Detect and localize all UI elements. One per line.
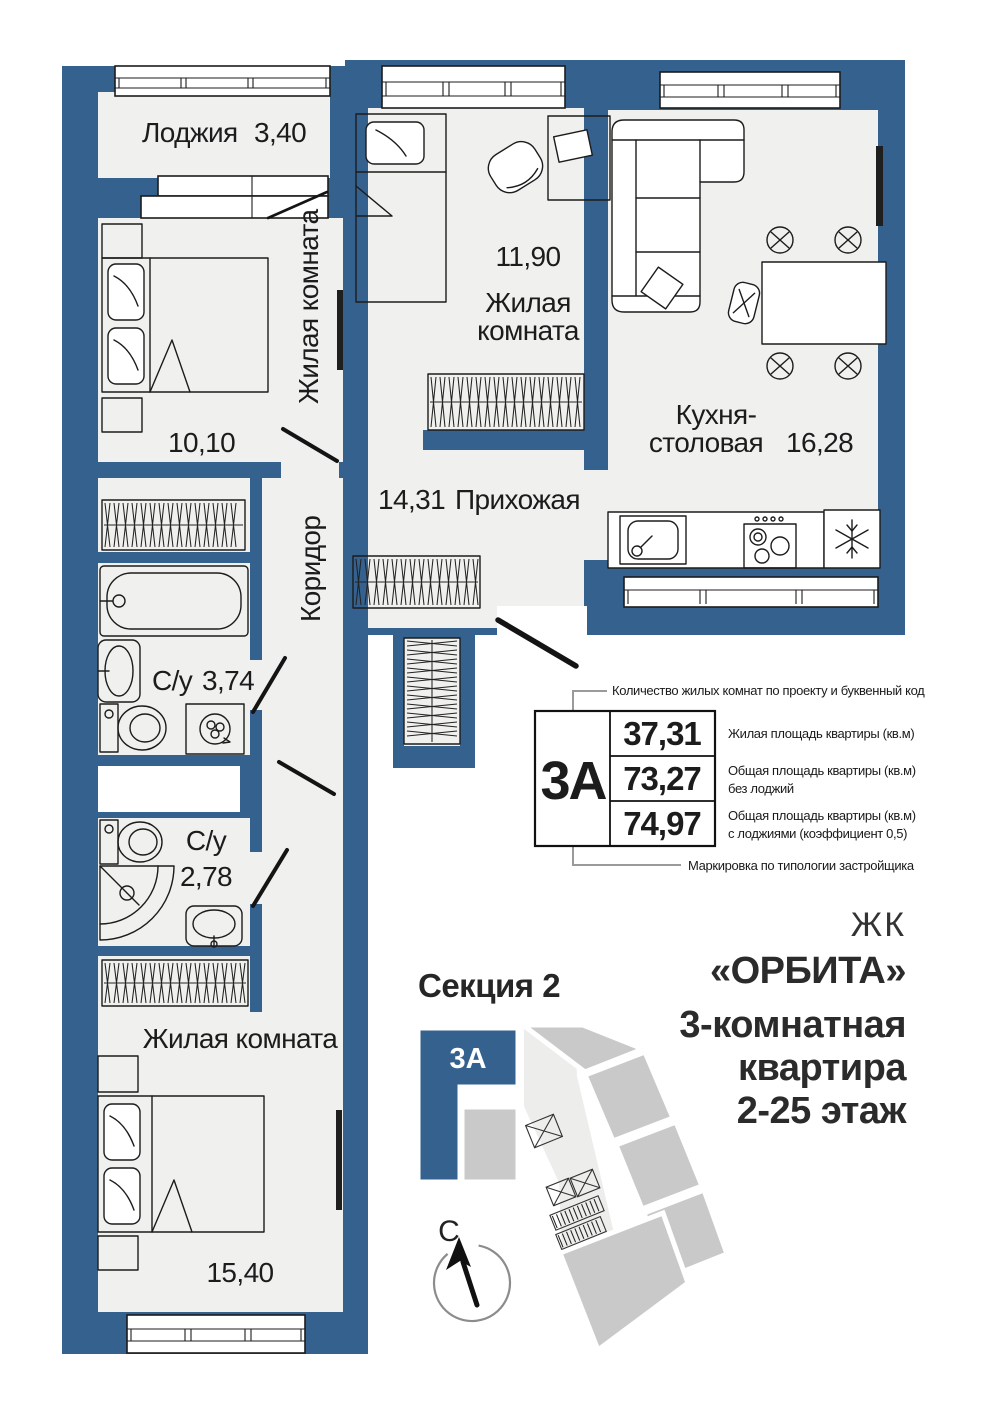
spec-table: 3А 37,31 73,27 74,97 Количество жилых ко…	[535, 683, 925, 873]
room-label-hallway: Прихожая	[455, 484, 580, 515]
floor-wardrobe-zone1	[98, 478, 250, 552]
spec-bottom-note: Маркировка по типологии застройщика	[688, 858, 915, 873]
floor-bath-main	[98, 563, 250, 755]
spec-note-2a: Общая площадь квартиры (кв.м)	[728, 763, 916, 778]
window-kitchen-top	[660, 72, 840, 108]
fridge	[824, 510, 880, 568]
map-block	[462, 1107, 518, 1182]
room-area-bath-main: 3,74	[202, 665, 254, 696]
room-area-bedroom-top: 11,90	[496, 241, 561, 272]
apartment-floors: 2-25 этаж	[737, 1090, 908, 1132]
room-label-bedroom-top-2: комната	[477, 315, 580, 346]
apartment-type-line2: квартира	[738, 1047, 907, 1089]
dining-table	[762, 262, 886, 344]
window-kitchen-bottom	[624, 577, 878, 607]
window-bedroom-bottom	[127, 1315, 305, 1353]
apartment-type-line1: 3-комнатная	[679, 1004, 906, 1046]
window-loggia	[115, 66, 330, 96]
room-label-bath-main: С/у	[152, 665, 193, 696]
spec-note-1: Жилая площадь квартиры (кв.м)	[728, 726, 914, 741]
compass-north-label: С	[438, 1215, 460, 1248]
project-prefix: ЖК	[851, 906, 906, 944]
tv-bedroom-left	[337, 290, 343, 370]
window-bedroom-top	[382, 66, 565, 108]
spec-value-living-area: 37,31	[623, 715, 701, 752]
compass: С	[434, 1215, 510, 1321]
floor-kitchen-passage	[584, 470, 608, 560]
room-area-hallway: 14,31	[378, 484, 445, 515]
unit-code: 3А	[540, 751, 606, 811]
spec-note-3a: Общая площадь квартиры (кв.м)	[728, 808, 916, 823]
room-label-bedroom-top-1: Жилая	[485, 287, 571, 318]
room-label-bath-guest: С/у	[186, 825, 227, 856]
spec-value-total-area: 73,27	[623, 760, 701, 797]
room-area-bedroom-bottom: 15,40	[206, 1257, 273, 1288]
kitchen-counter	[608, 510, 880, 568]
room-label-kitchen-2: столовая	[649, 427, 763, 458]
duct-shaft	[98, 766, 240, 812]
room-area-bath-guest: 2,78	[180, 861, 232, 892]
room-label-loggia: Лоджия	[142, 117, 238, 148]
room-label-bedroom-left: Жилая комната	[293, 209, 324, 404]
room-area-kitchen: 16,28	[786, 427, 853, 458]
project-title: ЖК «ОРБИТА» 3-комнатная квартира 2-25 эт…	[679, 906, 907, 1132]
room-label-corridor: Коридор	[295, 516, 326, 622]
spec-value-total-area-loggia: 74,97	[623, 805, 701, 842]
tv-bedroom-bottom	[336, 1110, 342, 1210]
tv-kitchen	[876, 146, 883, 226]
map-unit-code: 3А	[449, 1043, 486, 1075]
section-title: Секция 2	[418, 967, 560, 1004]
floorplan-svg: Лоджия 3,40 Жилая комната 10,10 11,90 Жи…	[0, 0, 1000, 1408]
room-area-loggia: 3,40	[254, 117, 306, 148]
room-label-bedroom-bottom: Жилая комната	[143, 1023, 338, 1054]
room-area-bedroom-left: 10,10	[168, 427, 235, 458]
room-label-kitchen-1: Кухня-	[676, 399, 757, 430]
floor-bedroom-top-hallway	[368, 108, 584, 628]
spec-note-2b: без лоджий	[728, 781, 794, 796]
spec-note-3b: с лоджиями (коэффициент 0,5)	[728, 826, 907, 841]
spec-top-note: Количество жилых комнат по проекту и бук…	[612, 683, 925, 698]
floorplan-page: Лоджия 3,40 Жилая комната 10,10 11,90 Жи…	[0, 0, 1000, 1408]
project-name: «ОРБИТА»	[710, 950, 906, 992]
